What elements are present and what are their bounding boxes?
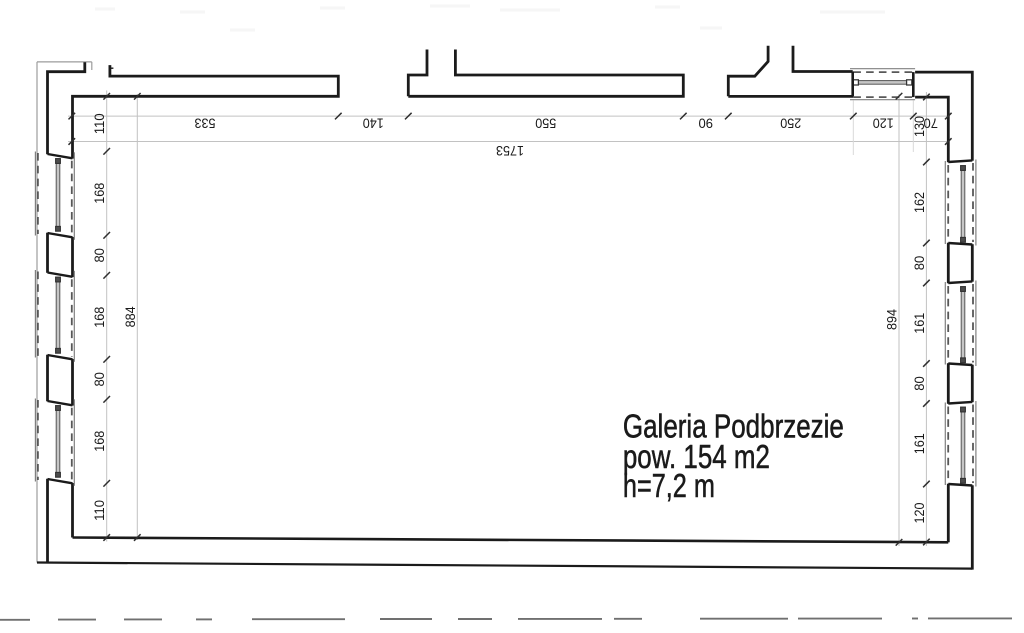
- svg-text:120: 120: [911, 502, 927, 523]
- svg-text:168: 168: [91, 183, 107, 204]
- svg-text:h=7,2 m: h=7,2 m: [623, 468, 715, 505]
- svg-text:110: 110: [91, 113, 107, 134]
- svg-text:894: 894: [883, 309, 899, 330]
- svg-text:161: 161: [911, 313, 927, 334]
- svg-text:550: 550: [535, 116, 556, 132]
- svg-text:162: 162: [911, 192, 927, 213]
- svg-text:140: 140: [363, 116, 384, 132]
- svg-text:168: 168: [91, 307, 107, 328]
- svg-text:884: 884: [122, 306, 138, 327]
- svg-text:80: 80: [911, 376, 927, 391]
- svg-text:120: 120: [873, 116, 894, 132]
- svg-text:1753: 1753: [496, 143, 524, 159]
- svg-text:168: 168: [91, 431, 107, 452]
- svg-text:250: 250: [780, 116, 801, 132]
- svg-text:110: 110: [91, 500, 107, 521]
- svg-text:161: 161: [911, 433, 927, 454]
- svg-text:130: 130: [911, 116, 927, 137]
- svg-text:80: 80: [911, 256, 927, 271]
- svg-text:80: 80: [91, 372, 107, 387]
- svg-text:80: 80: [91, 248, 107, 263]
- svg-text:90: 90: [698, 116, 713, 132]
- svg-text:533: 533: [194, 116, 215, 132]
